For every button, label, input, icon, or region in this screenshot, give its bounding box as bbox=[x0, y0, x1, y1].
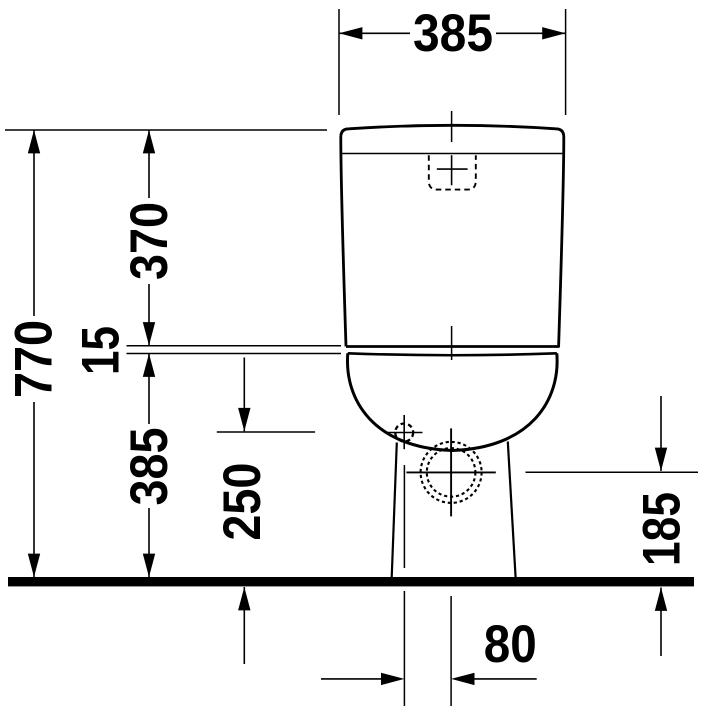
svg-text:15: 15 bbox=[71, 326, 130, 375]
svg-text:370: 370 bbox=[120, 202, 179, 280]
svg-text:770: 770 bbox=[5, 320, 64, 398]
svg-text:80: 80 bbox=[484, 615, 537, 674]
svg-text:250: 250 bbox=[213, 463, 272, 541]
svg-text:185: 185 bbox=[632, 492, 691, 566]
svg-text:385: 385 bbox=[120, 428, 179, 506]
svg-text:385: 385 bbox=[413, 4, 493, 63]
